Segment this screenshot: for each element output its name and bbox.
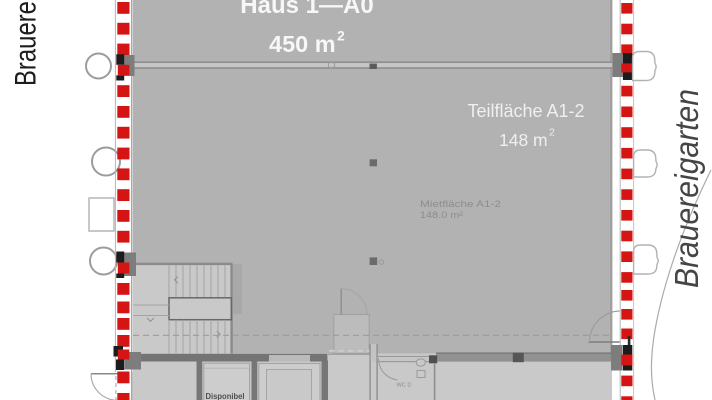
svg-text:Teilfläche A1-2: Teilfläche A1-2 (467, 101, 584, 121)
svg-text:Brauereigarten: Brauereigarten (10, 0, 43, 86)
svg-text:450 m: 450 m (269, 31, 336, 57)
svg-text:Brauereigarten: Brauereigarten (668, 89, 705, 288)
svg-text:Disponibel: Disponibel (206, 391, 245, 400)
svg-text:148 m: 148 m (499, 130, 548, 150)
svg-text:WC D: WC D (397, 383, 412, 389)
svg-text:148.0 m²: 148.0 m² (420, 210, 464, 221)
svg-text:Mietfläche A1-2: Mietfläche A1-2 (420, 199, 501, 210)
svg-text:2: 2 (337, 28, 345, 44)
svg-text:Haus 1—A0: Haus 1—A0 (240, 0, 373, 19)
svg-text:2: 2 (549, 127, 555, 139)
